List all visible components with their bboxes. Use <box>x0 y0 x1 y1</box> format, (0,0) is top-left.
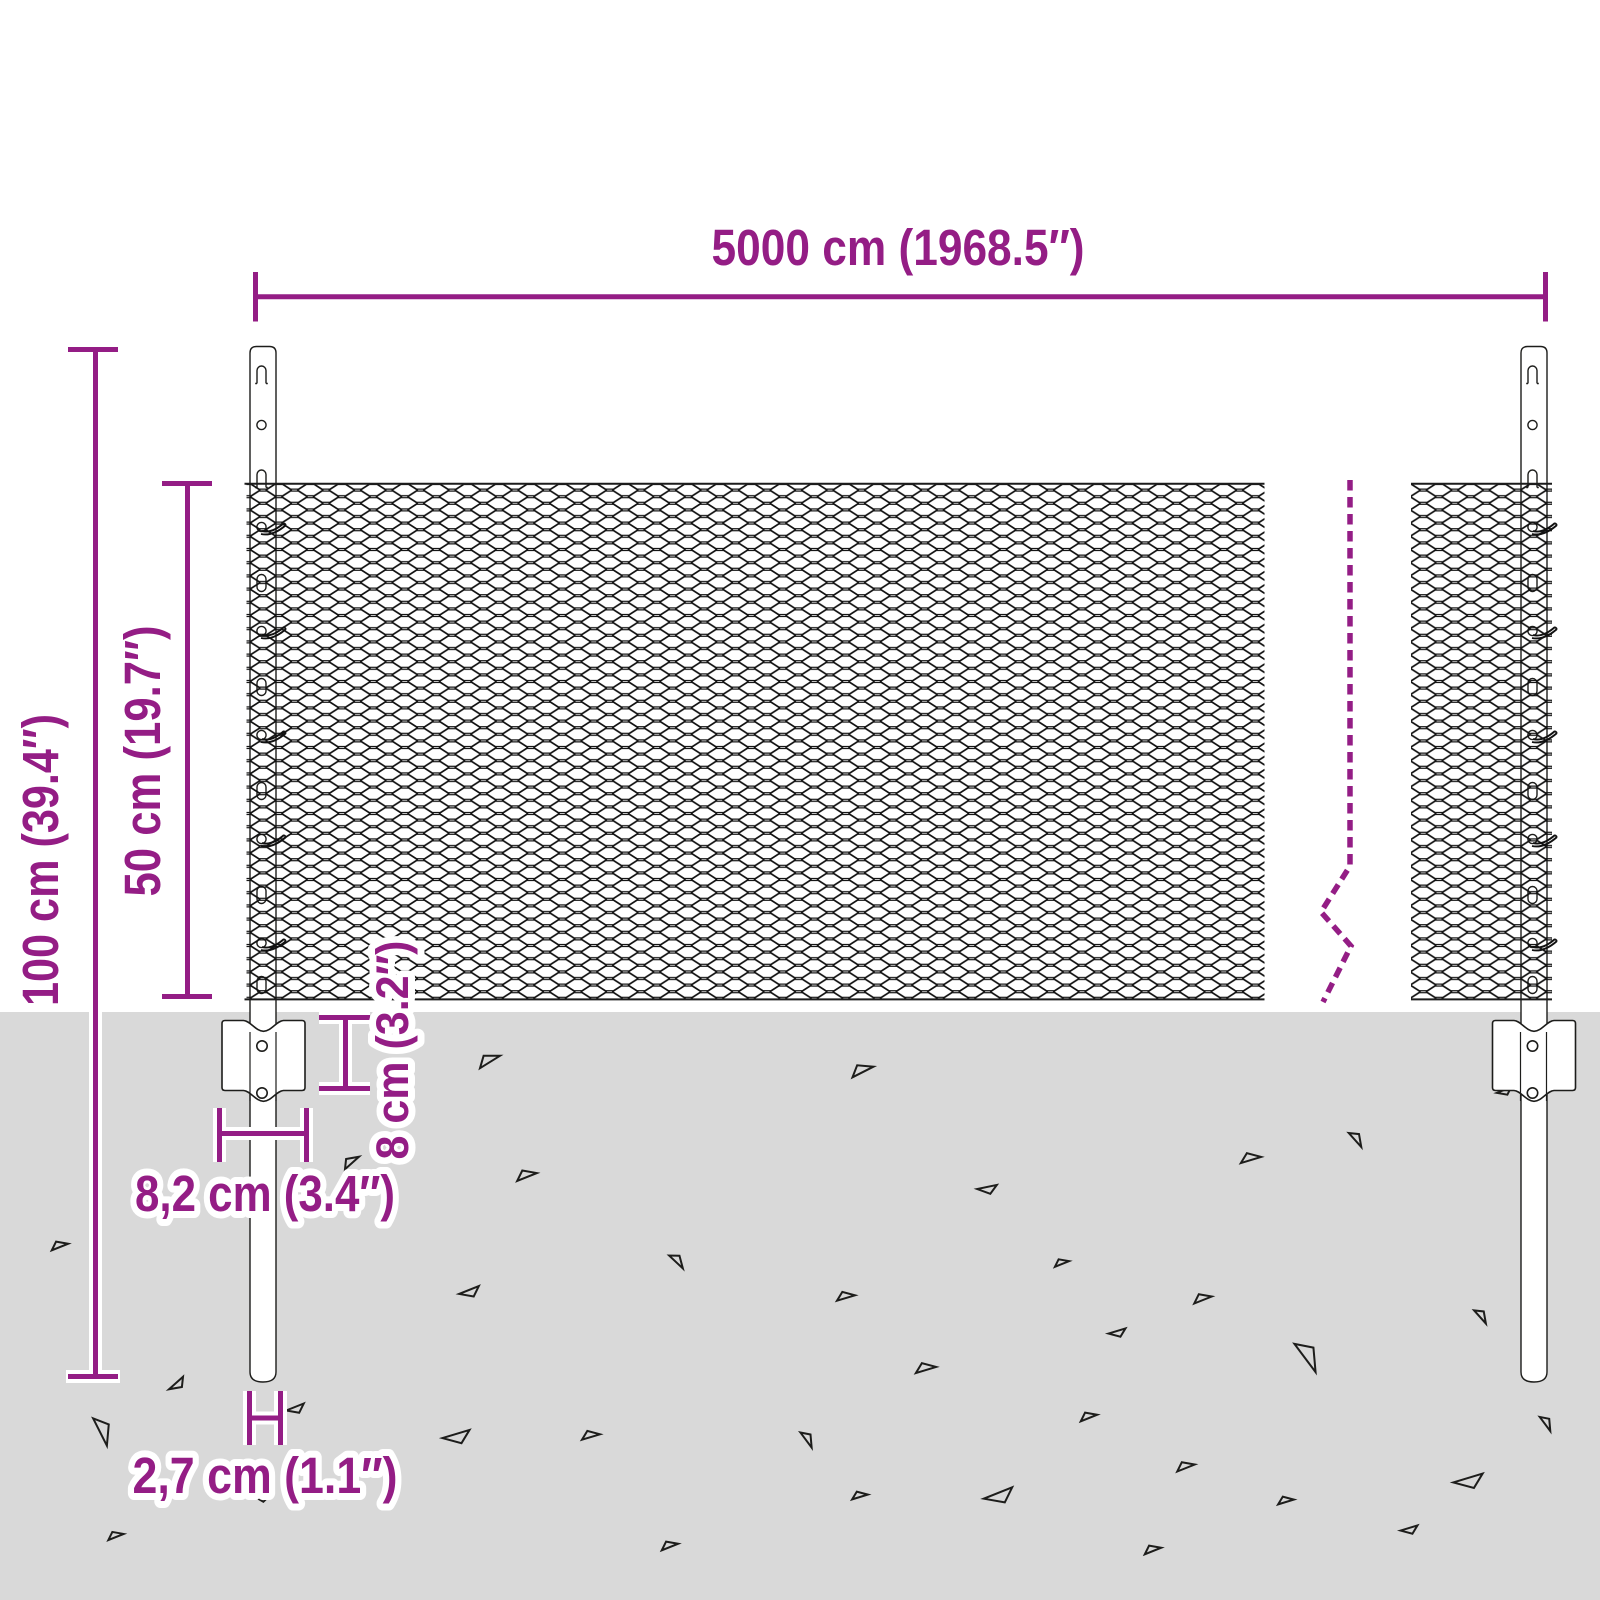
svg-text:5000 cm (1968.5″): 5000 cm (1968.5″) <box>712 219 1085 276</box>
svg-text:2,7 cm (1.1″): 2,7 cm (1.1″) <box>133 1447 398 1504</box>
svg-text:100 cm (39.4″): 100 cm (39.4″) <box>12 714 69 1006</box>
svg-text:8 cm (3.2″): 8 cm (3.2″) <box>367 941 418 1160</box>
svg-text:8,2 cm (3.4″): 8,2 cm (3.4″) <box>135 1165 395 1222</box>
svg-text:50 cm (19.7″): 50 cm (19.7″) <box>114 626 171 897</box>
